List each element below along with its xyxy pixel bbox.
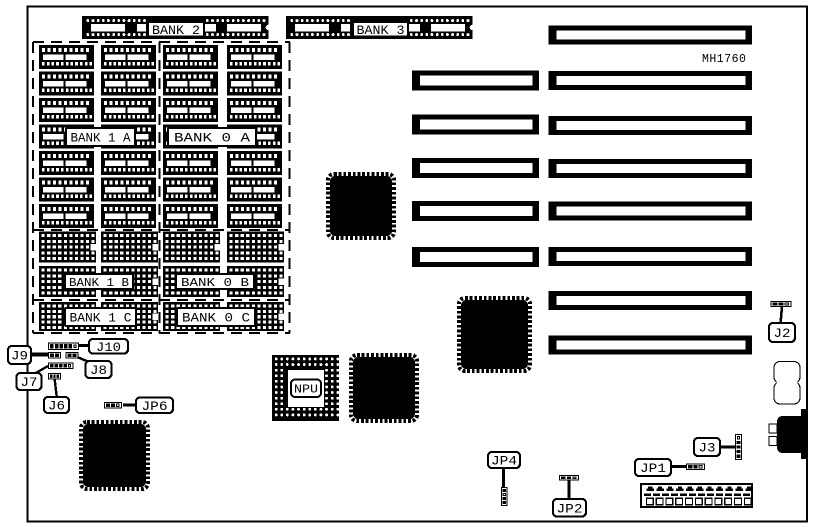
svg-text:JP6: JP6 — [142, 400, 168, 414]
svg-text:JP4: JP4 — [491, 455, 517, 469]
svg-text:BANK 0 B: BANK 0 B — [181, 276, 249, 290]
svg-text:BANK 1 C: BANK 1 C — [70, 312, 132, 326]
svg-text:J9: J9 — [11, 350, 28, 364]
svg-text:BANK 2: BANK 2 — [152, 24, 200, 38]
svg-text:BANK 1 B: BANK 1 B — [69, 276, 129, 290]
svg-text:BANK 0 C: BANK 0 C — [182, 312, 250, 326]
svg-text:J8: J8 — [90, 364, 107, 378]
svg-text:J10: J10 — [96, 341, 121, 355]
svg-text:BANK 1 A: BANK 1 A — [71, 132, 131, 146]
svg-text:J3: J3 — [699, 442, 716, 456]
svg-text:JP2: JP2 — [557, 502, 583, 516]
svg-text:J2: J2 — [774, 327, 791, 341]
svg-text:J6: J6 — [48, 400, 65, 414]
svg-text:MH1760: MH1760 — [702, 53, 746, 66]
svg-text:NPU: NPU — [294, 383, 318, 397]
svg-text:BANK 3: BANK 3 — [357, 24, 405, 38]
svg-text:BANK 0 A: BANK 0 A — [174, 132, 251, 146]
svg-text:JP1: JP1 — [640, 462, 666, 476]
svg-text:J7: J7 — [21, 376, 38, 390]
